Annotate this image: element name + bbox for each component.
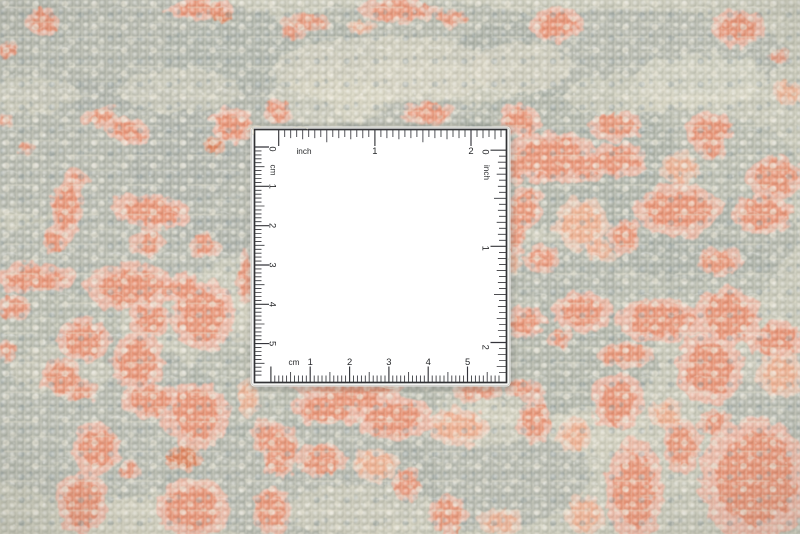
svg-text:2: 2	[347, 356, 352, 367]
svg-text:0: 0	[268, 146, 279, 151]
svg-text:0: 0	[480, 149, 491, 154]
svg-text:cm: cm	[268, 165, 277, 176]
svg-text:cm: cm	[289, 358, 300, 367]
svg-text:1: 1	[480, 246, 491, 251]
svg-text:4: 4	[268, 302, 279, 307]
svg-text:2: 2	[468, 145, 473, 156]
svg-text:2: 2	[268, 223, 279, 228]
svg-text:4: 4	[426, 356, 431, 367]
svg-text:5: 5	[268, 341, 279, 346]
svg-text:1: 1	[268, 184, 279, 189]
svg-text:2: 2	[480, 345, 491, 350]
svg-text:inch: inch	[482, 165, 491, 180]
svg-text:1: 1	[308, 356, 313, 367]
svg-text:3: 3	[386, 356, 391, 367]
svg-text:3: 3	[268, 262, 279, 267]
svg-text:inch: inch	[296, 147, 311, 156]
svg-text:1: 1	[372, 145, 377, 156]
svg-text:5: 5	[465, 356, 470, 367]
